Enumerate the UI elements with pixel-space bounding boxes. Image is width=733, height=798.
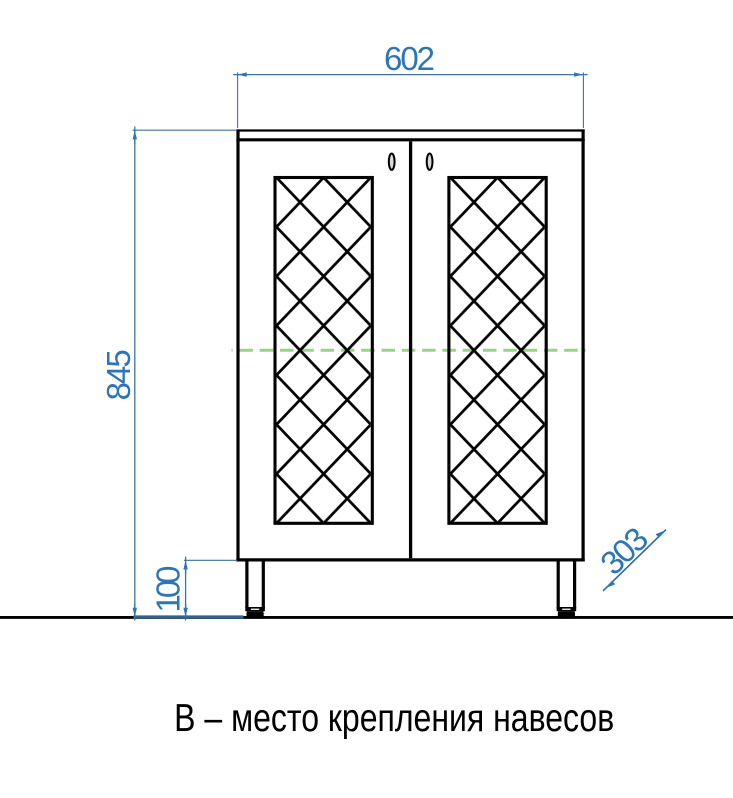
svg-text:В – место крепления навесов: В – место крепления навесов — [174, 696, 614, 740]
svg-text:602: 602 — [384, 40, 434, 77]
svg-text:100: 100 — [150, 566, 187, 613]
svg-text:845: 845 — [100, 351, 137, 401]
